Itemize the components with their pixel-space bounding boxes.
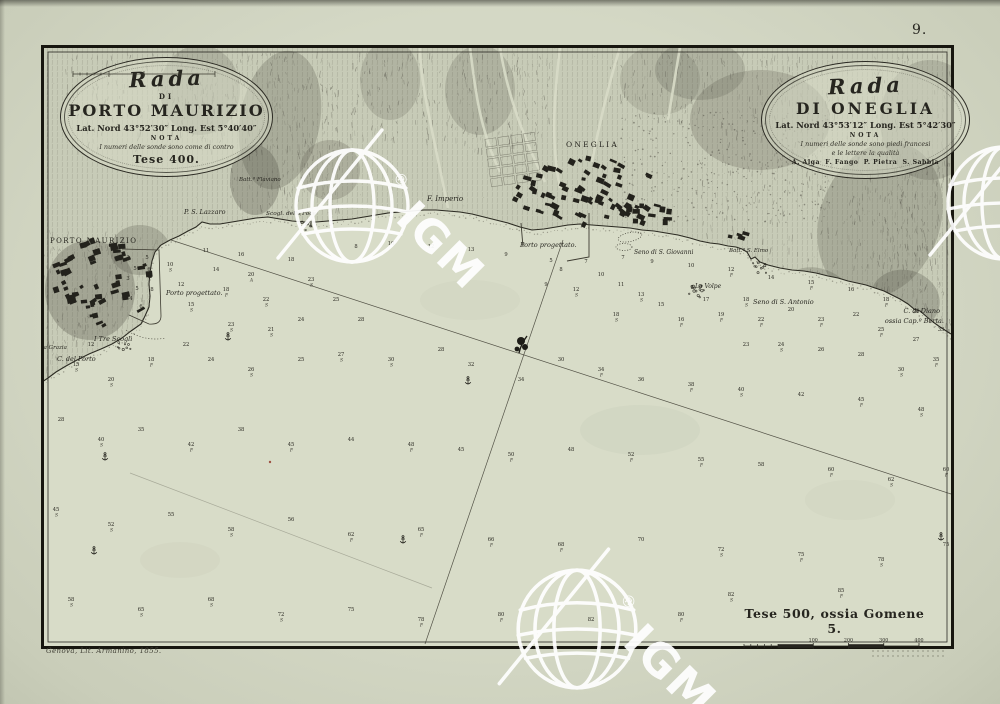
orchard-dot bbox=[785, 179, 787, 181]
orchard-dot bbox=[664, 117, 665, 118]
beach-dot bbox=[799, 272, 800, 273]
scale-tick-label: 400 bbox=[914, 638, 923, 644]
land-fleck bbox=[672, 62, 673, 63]
orchard-dot bbox=[820, 189, 821, 190]
orchard-dot bbox=[763, 189, 764, 190]
orchard-dot bbox=[825, 176, 826, 177]
land-fleck bbox=[317, 145, 318, 146]
orchard-dot bbox=[663, 199, 664, 200]
sounding-quality: S bbox=[575, 292, 578, 297]
beach-dot bbox=[617, 230, 618, 231]
sounding-quality: S bbox=[640, 297, 643, 302]
beach-dot bbox=[454, 215, 455, 216]
beach-dot bbox=[153, 258, 154, 259]
beach-dot bbox=[180, 238, 181, 239]
beach-dot bbox=[165, 245, 166, 246]
beach-dot bbox=[620, 231, 621, 232]
beach-dot bbox=[189, 232, 190, 233]
beach-dot bbox=[103, 350, 105, 352]
beach-dot bbox=[141, 326, 142, 327]
beach-dot bbox=[148, 285, 149, 286]
sounding-depth: 32 bbox=[468, 362, 475, 368]
sounding-depth: 3 bbox=[126, 255, 129, 261]
sounding-depth: 35 bbox=[138, 427, 145, 433]
beach-dot bbox=[253, 222, 254, 223]
orchard-dot bbox=[820, 207, 822, 209]
cartouche-coordinates: Lat. Nord 43°53′12″ Long. Est 5°42′30″ bbox=[775, 121, 955, 131]
sounding-quality: S bbox=[880, 562, 883, 567]
land-fleck bbox=[131, 267, 132, 268]
sounding-depth: 5 bbox=[135, 286, 138, 292]
orchard-dot bbox=[648, 116, 649, 117]
beach-dot bbox=[197, 230, 198, 231]
orchard-dot bbox=[784, 191, 786, 193]
beach-dot bbox=[557, 230, 558, 231]
orchard-dot bbox=[622, 128, 624, 130]
beach-dot bbox=[609, 230, 610, 231]
land-fleck bbox=[141, 202, 142, 203]
beach-dot bbox=[668, 235, 669, 236]
orchard-dot bbox=[727, 184, 729, 186]
beach-dot bbox=[603, 228, 604, 229]
orchard-dot bbox=[651, 187, 652, 188]
beach-dot bbox=[218, 228, 219, 229]
scale-tick-label: 100 bbox=[809, 638, 818, 644]
orchard-dot bbox=[678, 191, 679, 192]
land-fleck bbox=[321, 196, 322, 197]
sounding-depth: 15 bbox=[658, 302, 665, 308]
sounding-depth: 10 bbox=[598, 272, 605, 278]
orchard-dot bbox=[719, 152, 720, 153]
beach-dot bbox=[365, 219, 366, 220]
orchard-dot bbox=[662, 165, 663, 166]
beach-dot bbox=[449, 213, 450, 214]
beach-dot bbox=[654, 234, 655, 235]
orchard-dot bbox=[775, 215, 776, 216]
orchard-dot bbox=[697, 119, 698, 120]
beach-dot bbox=[63, 371, 65, 373]
orchard-dot bbox=[682, 126, 683, 127]
orchard-dot bbox=[821, 221, 822, 222]
orchard-dot bbox=[756, 207, 757, 208]
orchard-dot bbox=[715, 112, 717, 114]
orchard-dot bbox=[661, 182, 663, 184]
building bbox=[632, 209, 639, 214]
beach-dot bbox=[168, 244, 169, 245]
orchard-dot bbox=[623, 205, 624, 206]
sounding-depth: 44 bbox=[348, 437, 355, 443]
sounding-depth: 28 bbox=[358, 317, 365, 323]
beach-dot bbox=[318, 226, 319, 227]
beach-dot bbox=[154, 254, 155, 255]
beach-dot bbox=[512, 229, 513, 230]
sounding-depth: 25 bbox=[333, 297, 340, 303]
sounding-depth: 58 bbox=[758, 462, 765, 468]
beach-dot bbox=[284, 221, 286, 223]
sounding-depth: 20 bbox=[788, 307, 795, 313]
building bbox=[86, 305, 91, 309]
nota-text: I numeri delle sonde sono come di contro bbox=[99, 144, 233, 151]
land-fleck bbox=[846, 219, 847, 220]
beach-dot bbox=[879, 295, 880, 296]
cartouche-script-title: Rada bbox=[827, 73, 904, 100]
sounding-depth: 48 bbox=[568, 447, 575, 453]
beach-dot bbox=[747, 255, 748, 256]
sounding-depth: 8 bbox=[559, 267, 562, 273]
map-label: Batt.ª S. Elmo bbox=[728, 247, 769, 254]
cartouche-di: DI bbox=[159, 93, 174, 101]
sounding-depth: 17 bbox=[703, 297, 710, 303]
sounding-depth: 36 bbox=[638, 377, 645, 383]
orchard-dot bbox=[665, 121, 667, 123]
orchard-dot bbox=[757, 171, 759, 173]
beach-dot bbox=[628, 230, 629, 231]
orchard-dot bbox=[651, 128, 653, 130]
orchard-dot bbox=[655, 147, 656, 148]
land-fleck bbox=[473, 138, 474, 139]
orchard-dot bbox=[677, 120, 678, 121]
beach-dot bbox=[170, 241, 172, 243]
building bbox=[116, 280, 121, 285]
beach-dot bbox=[550, 231, 551, 232]
sounding-depth: 16 bbox=[238, 252, 245, 258]
beach-dot bbox=[175, 242, 176, 243]
sounding-depth: 26 bbox=[818, 347, 825, 353]
beach-dot bbox=[870, 288, 872, 290]
sounding-depth: 56 bbox=[288, 517, 295, 523]
beach-dot bbox=[148, 309, 149, 310]
beach-dot bbox=[571, 228, 572, 229]
orchard-dot bbox=[767, 166, 768, 167]
orchard-dot bbox=[749, 202, 750, 203]
orchard-dot bbox=[681, 121, 682, 122]
orchard-dot bbox=[622, 118, 623, 119]
sounding-depth: 24 bbox=[208, 357, 215, 363]
orchard-dot bbox=[789, 213, 791, 215]
orchard-dot bbox=[791, 171, 792, 172]
orchard-dot bbox=[688, 128, 690, 130]
sounding-quality: S bbox=[55, 512, 58, 517]
orchard-dot bbox=[673, 220, 675, 222]
beach-dot bbox=[696, 243, 697, 244]
orchard-dot bbox=[708, 182, 710, 184]
land-fleck bbox=[647, 200, 648, 201]
beach-dot bbox=[788, 271, 790, 273]
beach-dot bbox=[771, 270, 772, 271]
orchard-dot bbox=[689, 124, 690, 125]
beach-dot bbox=[554, 230, 555, 231]
land-fleck bbox=[879, 222, 880, 223]
orchard-dot bbox=[681, 161, 682, 162]
orchard-dot bbox=[703, 115, 705, 117]
sounding-depth: 28 bbox=[58, 417, 65, 423]
land-fleck bbox=[392, 138, 393, 139]
land-fleck bbox=[908, 207, 909, 208]
orchard-dot bbox=[720, 142, 721, 143]
orchard-dot bbox=[685, 137, 686, 138]
orchard-dot bbox=[802, 191, 803, 192]
orchard-dot bbox=[651, 171, 653, 173]
sounding-quality: S bbox=[340, 357, 343, 362]
orchard-dot bbox=[699, 160, 700, 161]
orchard-dot bbox=[803, 218, 805, 220]
land-fleck bbox=[467, 155, 468, 156]
beach-dot bbox=[760, 265, 761, 266]
land-fleck bbox=[864, 240, 865, 241]
land-fleck bbox=[322, 210, 323, 211]
land-fleck bbox=[683, 55, 684, 56]
land-fleck bbox=[707, 168, 708, 169]
beach-dot bbox=[802, 274, 803, 275]
seabed-quality-legend: A. Alga F. Fango P. Pietra S. Sabbia bbox=[792, 159, 939, 166]
orchard-dot bbox=[697, 164, 699, 166]
beach-dot bbox=[247, 223, 248, 224]
beach-dot bbox=[368, 221, 369, 222]
orchard-dot bbox=[653, 112, 655, 114]
orchard-dot bbox=[751, 197, 752, 198]
land-fleck bbox=[290, 169, 291, 170]
beach-dot bbox=[795, 273, 796, 274]
orchard-dot bbox=[728, 171, 729, 172]
hill-shadow bbox=[445, 45, 515, 135]
orchard-dot bbox=[728, 163, 730, 165]
beach-dot bbox=[750, 260, 752, 262]
orchard-dot bbox=[720, 139, 721, 140]
orchard-dot bbox=[753, 202, 754, 203]
orchard-dot bbox=[620, 138, 622, 140]
beach-dot bbox=[945, 333, 946, 334]
beach-dot bbox=[586, 228, 587, 229]
orchard-dot bbox=[632, 184, 633, 185]
orchard-dot bbox=[714, 114, 715, 115]
orchard-dot bbox=[710, 154, 712, 156]
land-fleck bbox=[571, 196, 572, 197]
land-fleck bbox=[788, 170, 789, 171]
orchard-dot bbox=[823, 216, 824, 217]
beach-dot bbox=[216, 226, 217, 227]
land-fleck bbox=[463, 89, 464, 90]
orchard-dot bbox=[722, 123, 724, 125]
orchard-dot bbox=[691, 171, 693, 173]
land-fleck bbox=[812, 208, 813, 209]
orchard-dot bbox=[740, 117, 741, 118]
beach-dot bbox=[145, 319, 146, 320]
beach-dot bbox=[326, 226, 328, 228]
sounding-depth: 75 bbox=[943, 542, 950, 548]
land-fleck bbox=[617, 163, 618, 164]
orchard-dot bbox=[691, 202, 693, 204]
page-number: 9. bbox=[912, 22, 927, 38]
orchard-dot bbox=[673, 173, 674, 174]
orchard-dot bbox=[635, 150, 636, 151]
land-fleck bbox=[764, 57, 765, 58]
orchard-dot bbox=[712, 211, 713, 212]
circle-shape bbox=[515, 347, 520, 352]
sounding-quality: S bbox=[280, 617, 283, 622]
land-fleck bbox=[594, 56, 595, 57]
beach-dot bbox=[192, 232, 193, 233]
beach-dot bbox=[565, 228, 567, 230]
orchard-dot bbox=[767, 213, 768, 214]
orchard-dot bbox=[703, 192, 704, 193]
land-fleck bbox=[719, 119, 720, 120]
beach-dot bbox=[658, 236, 659, 237]
sounding-quality: A bbox=[249, 277, 253, 282]
sounding-depth: 8 bbox=[150, 287, 153, 293]
beach-dot bbox=[51, 377, 52, 378]
orchard-dot bbox=[741, 115, 742, 116]
building bbox=[81, 299, 88, 303]
sounding-depth: 14 bbox=[768, 275, 775, 281]
land-fleck bbox=[734, 147, 735, 148]
sounding-depth: 7 bbox=[621, 255, 624, 261]
orchard-dot bbox=[746, 211, 747, 212]
land-fleck bbox=[491, 110, 492, 111]
map-label: Batt.ª Flaviano bbox=[238, 176, 281, 183]
nota-text-line1: I numeri delle sonde sono piedi francesi bbox=[801, 141, 931, 148]
beach-dot bbox=[679, 239, 680, 240]
orchard-dot bbox=[769, 213, 770, 214]
paper-stain bbox=[580, 405, 700, 455]
beach-dot bbox=[662, 236, 663, 237]
cartouche-title: DI ONEGLIA bbox=[796, 100, 935, 118]
beach-dot bbox=[836, 282, 837, 283]
orchard-dot bbox=[710, 112, 712, 114]
land-fleck bbox=[113, 185, 114, 186]
beach-dot bbox=[934, 326, 936, 328]
orchard-dot bbox=[817, 203, 819, 205]
orchard-dot bbox=[637, 149, 638, 150]
orchard-dot bbox=[685, 216, 686, 217]
sounding-quality: S bbox=[110, 527, 113, 532]
beach-dot bbox=[575, 228, 576, 229]
building bbox=[663, 219, 668, 225]
orchard-dot bbox=[780, 213, 781, 214]
land-fleck bbox=[391, 112, 392, 113]
orchard-dot bbox=[720, 112, 721, 113]
land-fleck bbox=[269, 199, 270, 200]
orchard-dot bbox=[726, 149, 728, 151]
sounding-quality: S bbox=[70, 602, 73, 607]
orchard-dot bbox=[678, 187, 680, 189]
sounding-depth: 24 bbox=[298, 317, 305, 323]
orchard-dot bbox=[671, 194, 672, 195]
land-fleck bbox=[541, 98, 542, 99]
beach-dot bbox=[596, 229, 597, 230]
beach-dot bbox=[524, 230, 525, 231]
land-fleck bbox=[328, 212, 329, 213]
land-fleck bbox=[304, 87, 305, 88]
orchard-dot bbox=[677, 191, 678, 192]
orchard-dot bbox=[734, 129, 736, 131]
scale-tick-label: 300 bbox=[879, 638, 888, 644]
land-fleck bbox=[529, 77, 530, 78]
orchard-dot bbox=[803, 184, 804, 185]
land-fleck bbox=[482, 62, 483, 63]
orchard-dot bbox=[654, 118, 655, 119]
land-fleck bbox=[888, 265, 889, 266]
beach-dot bbox=[323, 225, 324, 226]
orchard-dot bbox=[759, 161, 760, 162]
beach-dot bbox=[631, 231, 632, 232]
land-fleck bbox=[631, 77, 632, 78]
land-fleck bbox=[524, 100, 525, 101]
beach-dot bbox=[109, 347, 110, 348]
orchard-dot bbox=[688, 199, 689, 200]
beach-dot bbox=[600, 230, 601, 231]
beach-dot bbox=[702, 245, 703, 246]
sounding-quality: S bbox=[140, 612, 143, 617]
land-fleck bbox=[759, 134, 760, 135]
land-fleck bbox=[825, 181, 826, 182]
beach-dot bbox=[682, 241, 683, 242]
beach-dot bbox=[526, 232, 527, 233]
beach-dot bbox=[699, 244, 700, 245]
beach-dot bbox=[250, 224, 251, 225]
land-fleck bbox=[683, 183, 684, 184]
orchard-dot bbox=[814, 173, 816, 175]
orchard-dot bbox=[728, 123, 730, 125]
beach-dot bbox=[115, 346, 117, 348]
orchard-dot bbox=[694, 125, 695, 126]
scale-caption: Tese 500, ossia Gomene 5. bbox=[742, 606, 927, 636]
chart-page: 35354668510S1215S111418F1620A22S1823S252… bbox=[0, 0, 1000, 704]
orchard-dot bbox=[638, 126, 639, 127]
building bbox=[95, 294, 102, 300]
orchard-dot bbox=[747, 120, 748, 121]
sounding-depth: 30 bbox=[558, 357, 565, 363]
beach-dot bbox=[852, 284, 853, 285]
sounding-depth: 6 bbox=[147, 267, 150, 273]
orchard-dot bbox=[767, 162, 768, 163]
orchard-dot bbox=[654, 156, 656, 158]
beach-dot bbox=[459, 216, 460, 217]
beach-dot bbox=[486, 219, 487, 220]
sounding-depth: 6 bbox=[139, 304, 142, 310]
beach-dot bbox=[159, 249, 160, 250]
beach-dot bbox=[205, 227, 206, 228]
orchard-dot bbox=[700, 162, 701, 163]
land-fleck bbox=[726, 192, 727, 193]
sounding-depth: 10 bbox=[688, 263, 695, 269]
land-fleck bbox=[363, 119, 364, 120]
beach-dot bbox=[152, 263, 153, 264]
land-fleck bbox=[463, 205, 464, 206]
orchard-dot bbox=[764, 220, 766, 222]
cartouche-scale-caption: Tese 400. bbox=[133, 154, 200, 167]
land-fleck bbox=[483, 197, 484, 198]
orchard-dot bbox=[736, 130, 737, 131]
land-fleck bbox=[595, 159, 596, 160]
beach-dot bbox=[343, 221, 344, 222]
beach-dot bbox=[648, 235, 649, 236]
land-fleck bbox=[668, 90, 669, 91]
beach-dot bbox=[287, 222, 288, 223]
land-fleck bbox=[686, 221, 687, 222]
beach-dot bbox=[724, 248, 726, 250]
beach-dot bbox=[673, 238, 674, 239]
orchard-dot bbox=[796, 201, 797, 202]
orchard-dot bbox=[650, 138, 651, 139]
land-fleck bbox=[629, 138, 630, 139]
land-fleck bbox=[350, 113, 351, 114]
land-fleck bbox=[930, 196, 931, 197]
land-fleck bbox=[463, 199, 464, 200]
orchard-dot bbox=[704, 158, 705, 159]
orchard-dot bbox=[708, 187, 709, 188]
orchard-dot bbox=[632, 140, 633, 141]
map-label: ONEGLIA bbox=[566, 140, 619, 149]
